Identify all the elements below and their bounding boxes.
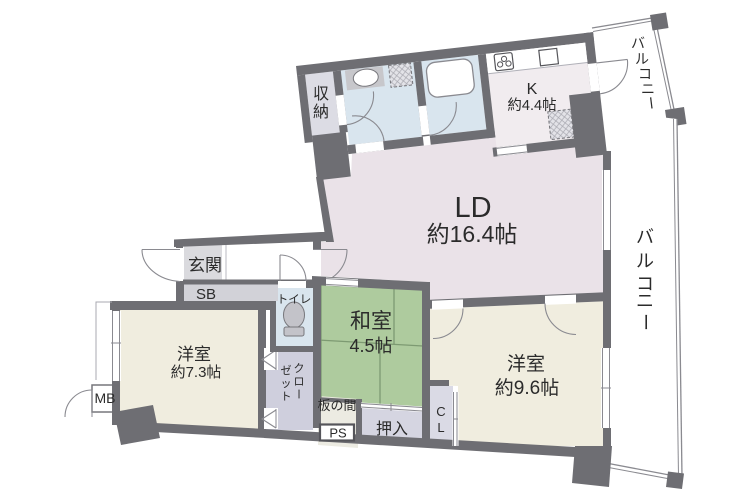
svg-text:バ: バ	[636, 227, 654, 247]
svg-text:バ: バ	[631, 35, 645, 51]
svg-text:ー: ー	[292, 389, 304, 400]
svg-text:ゼ: ゼ	[281, 364, 292, 377]
svg-text:約7.3帖: 約7.3帖	[171, 364, 222, 381]
svg-text:トイレ: トイレ	[277, 294, 312, 306]
svg-text:ロ: ロ	[294, 376, 305, 388]
svg-text:ニ: ニ	[641, 81, 655, 97]
svg-text:PS: PS	[329, 426, 347, 441]
svg-text:玄関: 玄関	[188, 256, 222, 275]
svg-text:ー: ー	[635, 313, 655, 331]
svg-text:ニ: ニ	[636, 291, 654, 311]
svg-text:ッ: ッ	[281, 378, 292, 390]
svg-text:板の間: 板の間	[317, 398, 356, 413]
svg-text:SB: SB	[196, 286, 216, 303]
svg-text:ク: ク	[294, 362, 305, 375]
svg-text:ー: ー	[642, 95, 660, 111]
svg-text:納: 納	[313, 103, 329, 121]
svg-text:押入: 押入	[376, 420, 408, 438]
svg-text:収: 収	[313, 85, 329, 103]
svg-text:約9.6帖: 約9.6帖	[495, 377, 559, 399]
svg-text:K: K	[527, 81, 538, 98]
svg-text:約4.4帖: 約4.4帖	[507, 97, 556, 114]
svg-text:洋室: 洋室	[507, 353, 545, 375]
svg-text:ル: ル	[636, 251, 654, 271]
svg-text:洋室: 洋室	[177, 345, 211, 364]
svg-text:4.5帖: 4.5帖	[349, 336, 392, 356]
svg-text:ル: ル	[635, 51, 649, 67]
svg-text:LD: LD	[454, 192, 491, 224]
svg-text:和室: 和室	[350, 310, 392, 333]
svg-text:コ: コ	[638, 66, 652, 82]
svg-text:MB: MB	[95, 390, 116, 406]
svg-text:ト: ト	[281, 391, 292, 403]
svg-text:約16.4帖: 約16.4帖	[427, 221, 518, 247]
svg-text:C: C	[436, 404, 445, 419]
svg-text:L: L	[437, 420, 444, 435]
